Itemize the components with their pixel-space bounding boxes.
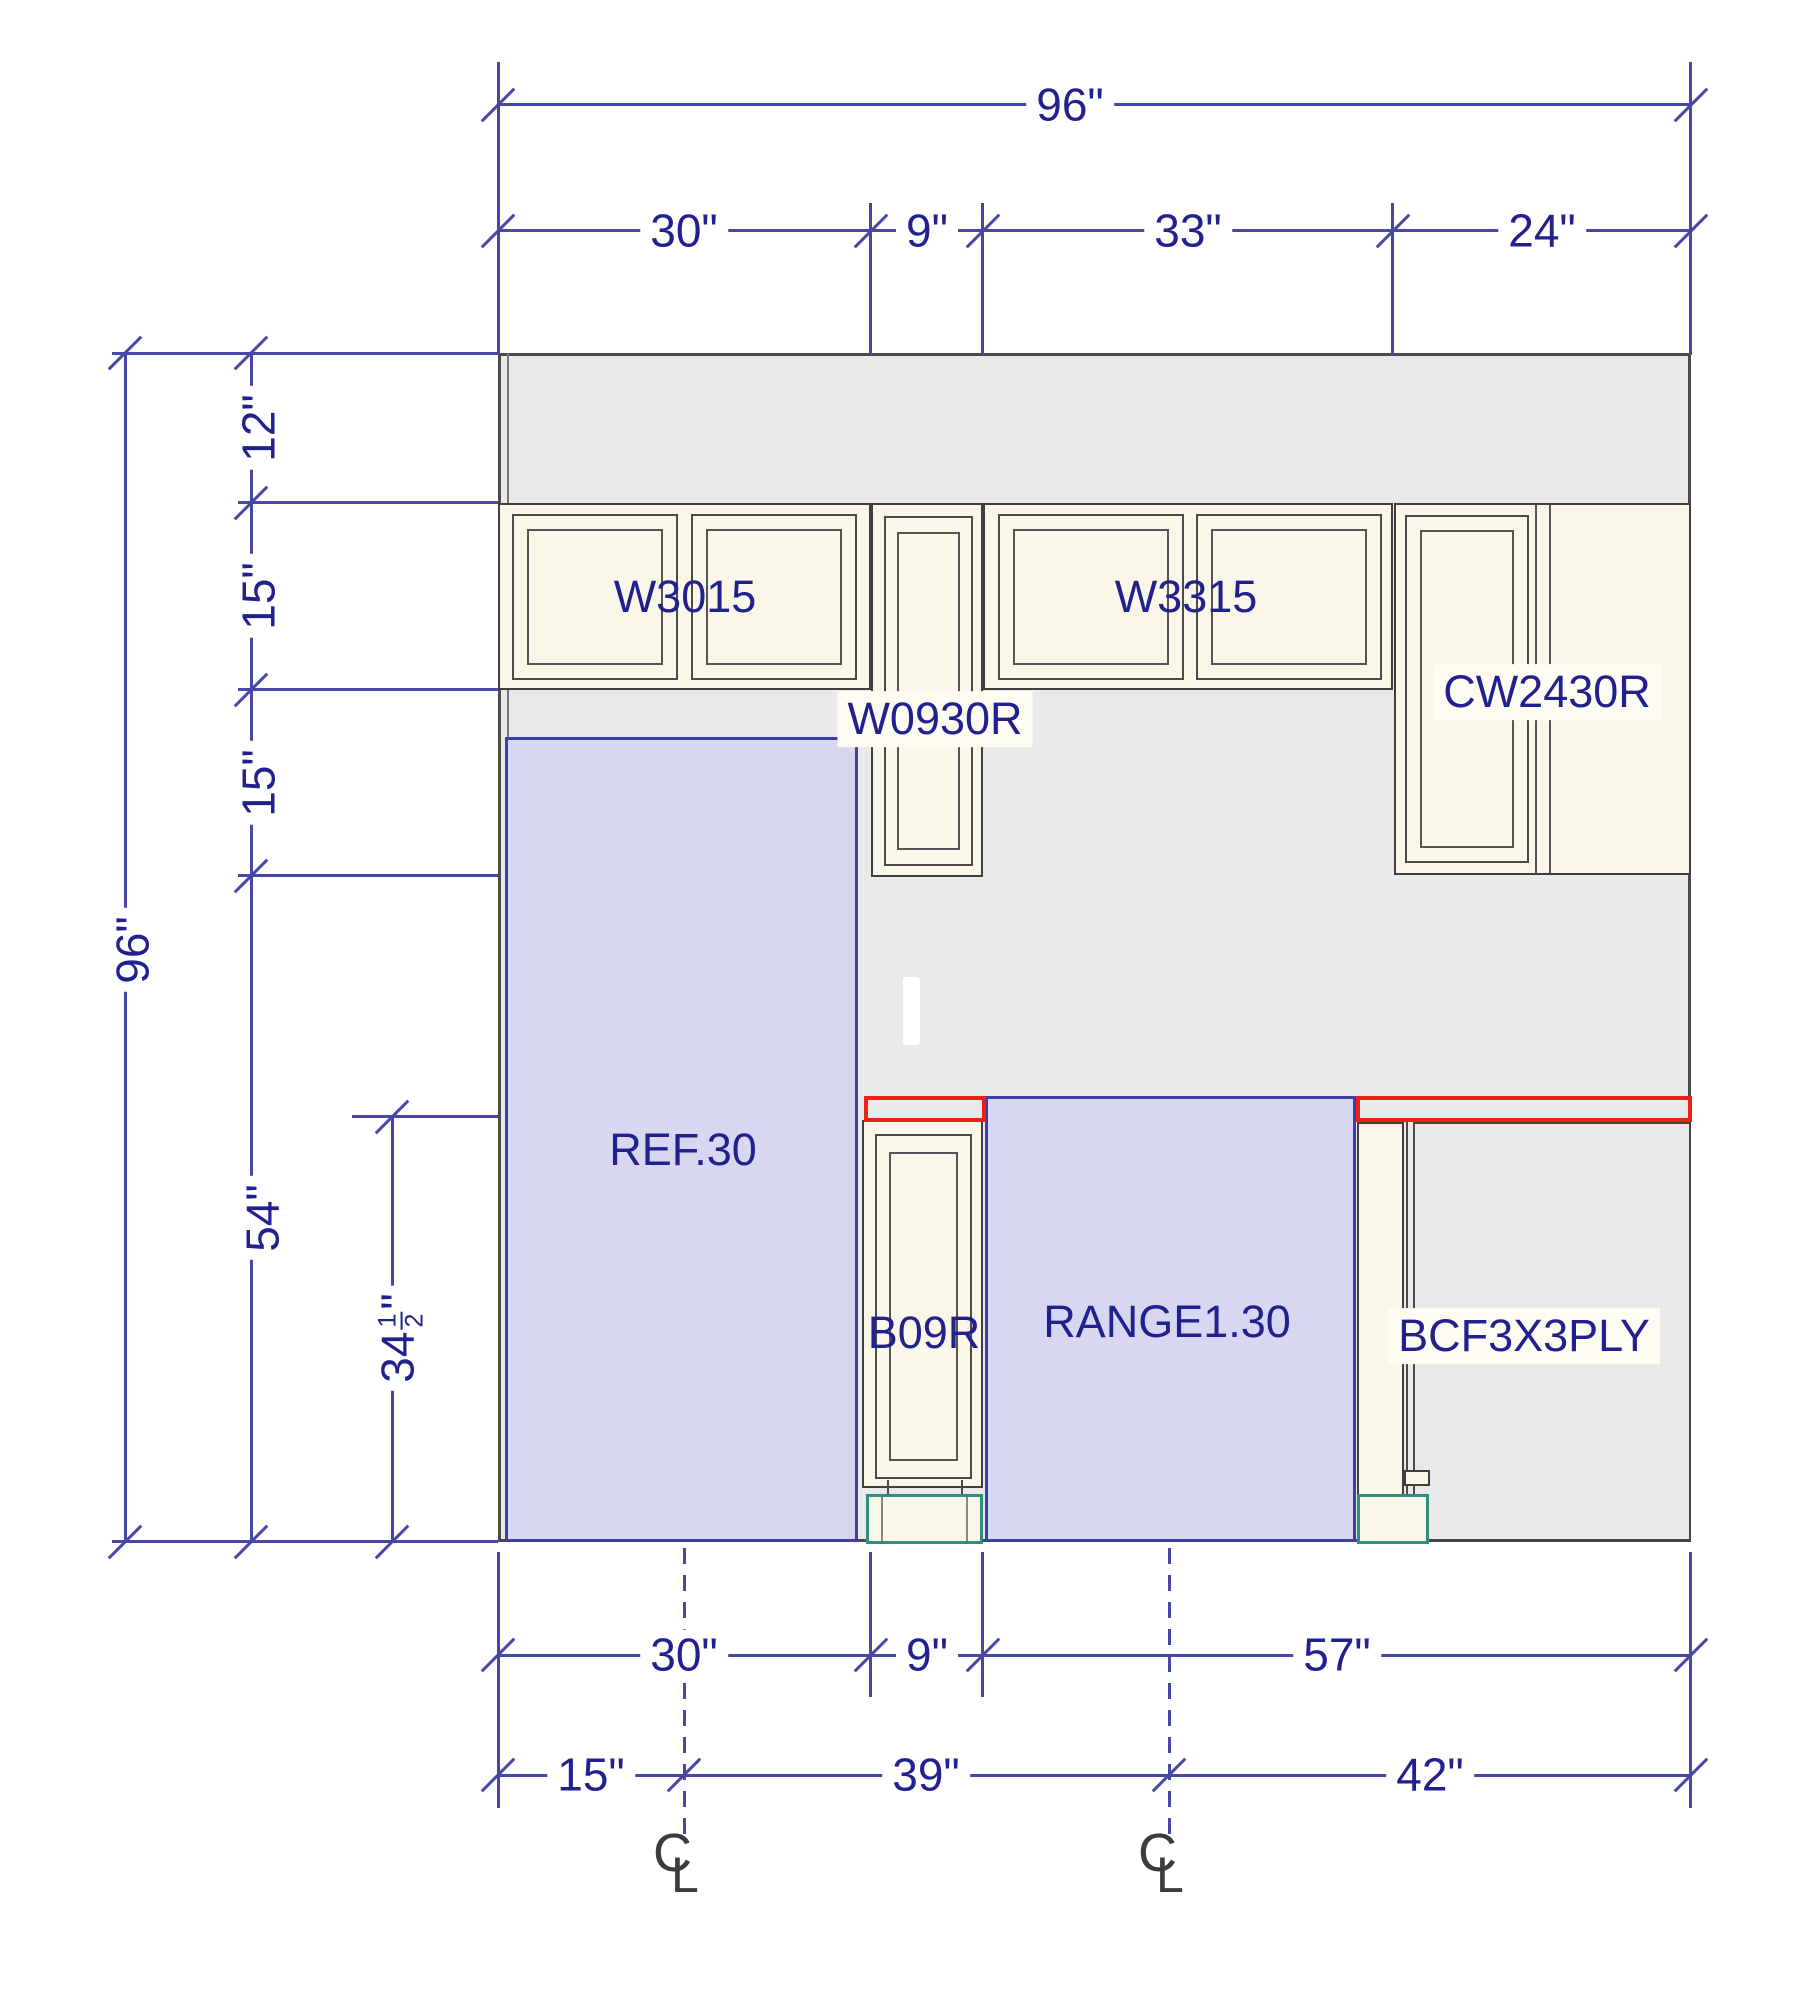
- centerline-symbol-l: L: [671, 1846, 699, 1904]
- dim-top-total: 96": [1026, 80, 1114, 131]
- corner-countertop-red: [1356, 1096, 1692, 1122]
- dim-bottom-30: 30": [640, 1630, 728, 1681]
- ext-left-876: [238, 874, 498, 877]
- bcf-toekick: [1357, 1494, 1429, 1544]
- dimline-bottom-row2: [498, 1774, 1691, 1777]
- centerline-symbol-range: C L: [1134, 1822, 1204, 1922]
- ext-left-1117: [352, 1115, 498, 1118]
- dim-bottom-39: 39": [882, 1750, 970, 1801]
- dim-left-total: 96": [108, 908, 159, 992]
- label-w3315: W3315: [1115, 571, 1258, 623]
- centerline-symbol-ref: C L: [649, 1822, 719, 1922]
- dim-left-34half: 3412": [373, 1285, 428, 1390]
- dim-top-24: 24": [1498, 206, 1586, 257]
- b09r-leg-right: [961, 1480, 963, 1494]
- b09r-countertop-red: [864, 1096, 986, 1122]
- b09r-toekick-line-right: [966, 1497, 968, 1541]
- label-w0930r: W0930R: [837, 691, 1032, 747]
- label-bcf: BCF3X3PLY: [1388, 1308, 1660, 1364]
- label-b09r: B09R: [868, 1307, 981, 1359]
- ext-left-floor: [112, 1540, 498, 1543]
- base-cabinet-b09r: [862, 1120, 983, 1488]
- ext-top-1393: [1391, 203, 1394, 355]
- fraction-denominator: 2: [402, 1312, 427, 1330]
- dimline-left-segments: [250, 353, 253, 1542]
- centerline-range: [1168, 1548, 1171, 1843]
- wall-cabinet-w0930r: [871, 503, 983, 877]
- dim-34half-whole: 34: [372, 1332, 424, 1383]
- dim-top-9: 9": [896, 206, 958, 257]
- b09r-leg-left: [887, 1480, 889, 1494]
- dim-top-33: 33": [1144, 206, 1232, 257]
- dim-bottom-57: 57": [1293, 1630, 1381, 1681]
- ext-bottom-983: [981, 1552, 984, 1697]
- ext-bottom-871: [869, 1552, 872, 1697]
- backsplash-white-mark: [903, 977, 920, 1045]
- dim-left-12: 12": [234, 386, 285, 470]
- label-range: RANGE1.30: [1043, 1296, 1291, 1348]
- fraction-numerator: 1: [375, 1312, 402, 1330]
- b09r-toekick: [866, 1494, 983, 1544]
- ext-left-690: [238, 688, 498, 691]
- ext-left-walltop: [112, 352, 498, 355]
- label-cw2430r: CW2430R: [1433, 664, 1661, 720]
- dim-top-30: 30": [640, 206, 728, 257]
- dim-left-15a: 15": [234, 554, 285, 638]
- label-ref: REF.30: [609, 1124, 757, 1176]
- ext-left-503: [238, 501, 498, 504]
- dim-34half-fraction: 12: [375, 1312, 427, 1330]
- dim-bottom-9: 9": [896, 1630, 958, 1681]
- dim-left-54: 54": [238, 1176, 289, 1260]
- kitchen-elevation-drawing: 96" 30" 9" 33" 24" 96" 12" 15" 15" 54" 3…: [0, 0, 1805, 2000]
- dim-left-15b: 15": [234, 741, 285, 825]
- ext-top-871: [869, 203, 872, 355]
- centerline-ref: [683, 1548, 686, 1843]
- ext-top-983: [981, 203, 984, 355]
- centerline-symbol-l: L: [1156, 1846, 1184, 1904]
- b09r-toekick-line-left: [881, 1497, 883, 1541]
- dim-bottom-15: 15": [547, 1750, 635, 1801]
- dim-34half-unit: ": [372, 1293, 424, 1309]
- bcf-bottom-step: [1404, 1470, 1430, 1486]
- ext-bottom-right: [1689, 1552, 1692, 1808]
- label-w3015: W3015: [614, 571, 757, 623]
- dim-bottom-42: 42": [1386, 1750, 1474, 1801]
